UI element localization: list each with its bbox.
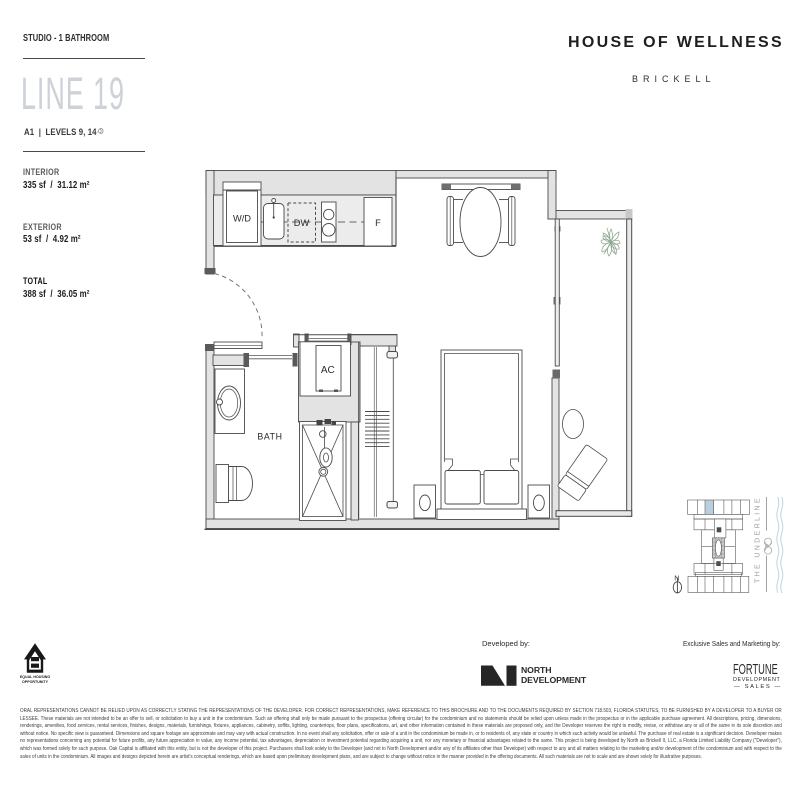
svg-text:N: N: [674, 574, 679, 583]
svg-text:W/D: W/D: [233, 214, 251, 224]
svg-text:THE UNDERLINE: THE UNDERLINE: [755, 496, 762, 583]
svg-text:DW: DW: [294, 218, 310, 228]
svg-text:BATH: BATH: [257, 432, 282, 442]
svg-text:AC: AC: [321, 365, 335, 376]
svg-text:F: F: [375, 218, 381, 228]
